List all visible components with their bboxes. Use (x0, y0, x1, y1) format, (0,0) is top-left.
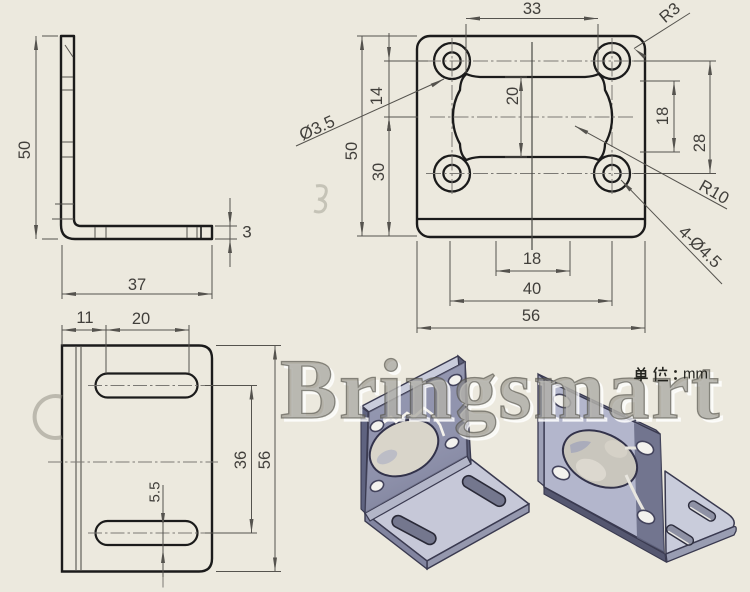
svg-text:Ø3.5: Ø3.5 (296, 112, 337, 145)
svg-text:18: 18 (523, 250, 541, 268)
svg-text:11: 11 (76, 309, 93, 327)
svg-text:56: 56 (256, 451, 274, 469)
svg-text:30: 30 (370, 163, 388, 181)
svg-text:50: 50 (343, 142, 361, 160)
svg-text:28: 28 (691, 134, 709, 152)
svg-text:Bringsmart: Bringsmart (280, 341, 721, 437)
svg-text:R10: R10 (696, 176, 733, 208)
svg-text:36: 36 (232, 451, 250, 469)
svg-text:20: 20 (132, 310, 150, 328)
svg-text:33: 33 (523, 0, 541, 18)
svg-text:3: 3 (242, 223, 251, 242)
svg-text:14: 14 (368, 87, 386, 105)
svg-text:40: 40 (523, 280, 541, 298)
svg-text:20: 20 (504, 87, 522, 105)
svg-text:5.5: 5.5 (147, 482, 164, 503)
svg-text:50: 50 (16, 141, 34, 159)
svg-text:4-Ø4.5: 4-Ø4.5 (675, 222, 726, 272)
svg-text:56: 56 (522, 307, 540, 325)
svg-text:R3: R3 (656, 0, 684, 27)
svg-text:37: 37 (128, 276, 146, 294)
svg-text:mm: mm (683, 366, 708, 383)
svg-text:18: 18 (654, 107, 672, 125)
